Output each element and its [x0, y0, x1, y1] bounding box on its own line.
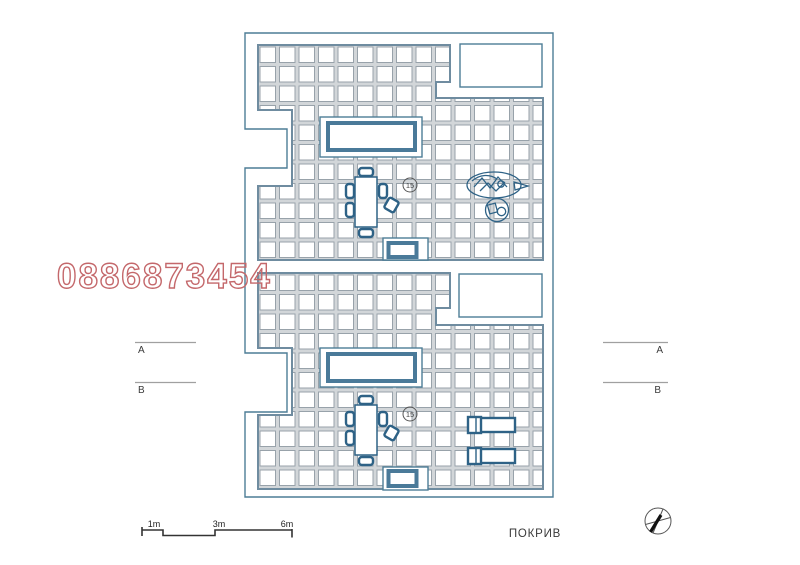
scale-label-1m: 1m: [148, 519, 161, 529]
section-marker-left-b: B: [135, 383, 196, 397]
skylight-top-right-lower: [459, 274, 542, 317]
chair: [346, 184, 354, 198]
chair: [359, 229, 373, 237]
table-top: [355, 177, 377, 227]
skylight-small-lower: [383, 467, 428, 490]
skylight-small-upper: [383, 238, 428, 260]
svg-text:A: A: [656, 345, 663, 356]
svg-text:15: 15: [406, 410, 414, 419]
chair: [346, 203, 354, 217]
section-marker-right-b: B: [603, 383, 668, 397]
svg-text:B: B: [138, 385, 145, 396]
chair: [359, 457, 373, 465]
table-top: [355, 405, 377, 455]
scale-bar: 1m 3m 6m: [142, 519, 293, 538]
drawing-title: ПОКРИВ: [509, 528, 561, 540]
chair: [379, 412, 387, 426]
section-marker-left-a: A: [135, 343, 196, 357]
svg-text:A: A: [138, 345, 145, 356]
svg-text:B: B: [654, 385, 661, 396]
skylight-center-upper: [320, 117, 422, 157]
north-arrow-icon: [645, 508, 671, 534]
chair: [346, 412, 354, 426]
chair: [359, 396, 373, 404]
svg-text:15: 15: [406, 181, 414, 190]
watermark-text: 0886873454: [57, 257, 272, 296]
chair: [359, 168, 373, 176]
scale-label-6m: 6m: [281, 519, 294, 529]
chair: [346, 431, 354, 445]
roof-plan-drawing: 15 15 A B A B: [0, 0, 800, 565]
chair: [379, 184, 387, 198]
sun-lounger-1: [468, 417, 515, 433]
skylight-center-lower: [320, 348, 422, 387]
skylight-top-right-upper: [460, 44, 542, 87]
roof-plan-page: 15 15 A B A B: [0, 0, 800, 565]
section-marker-right-a: A: [603, 343, 668, 357]
scale-label-3m: 3m: [213, 519, 226, 529]
sun-lounger-2: [468, 448, 515, 464]
